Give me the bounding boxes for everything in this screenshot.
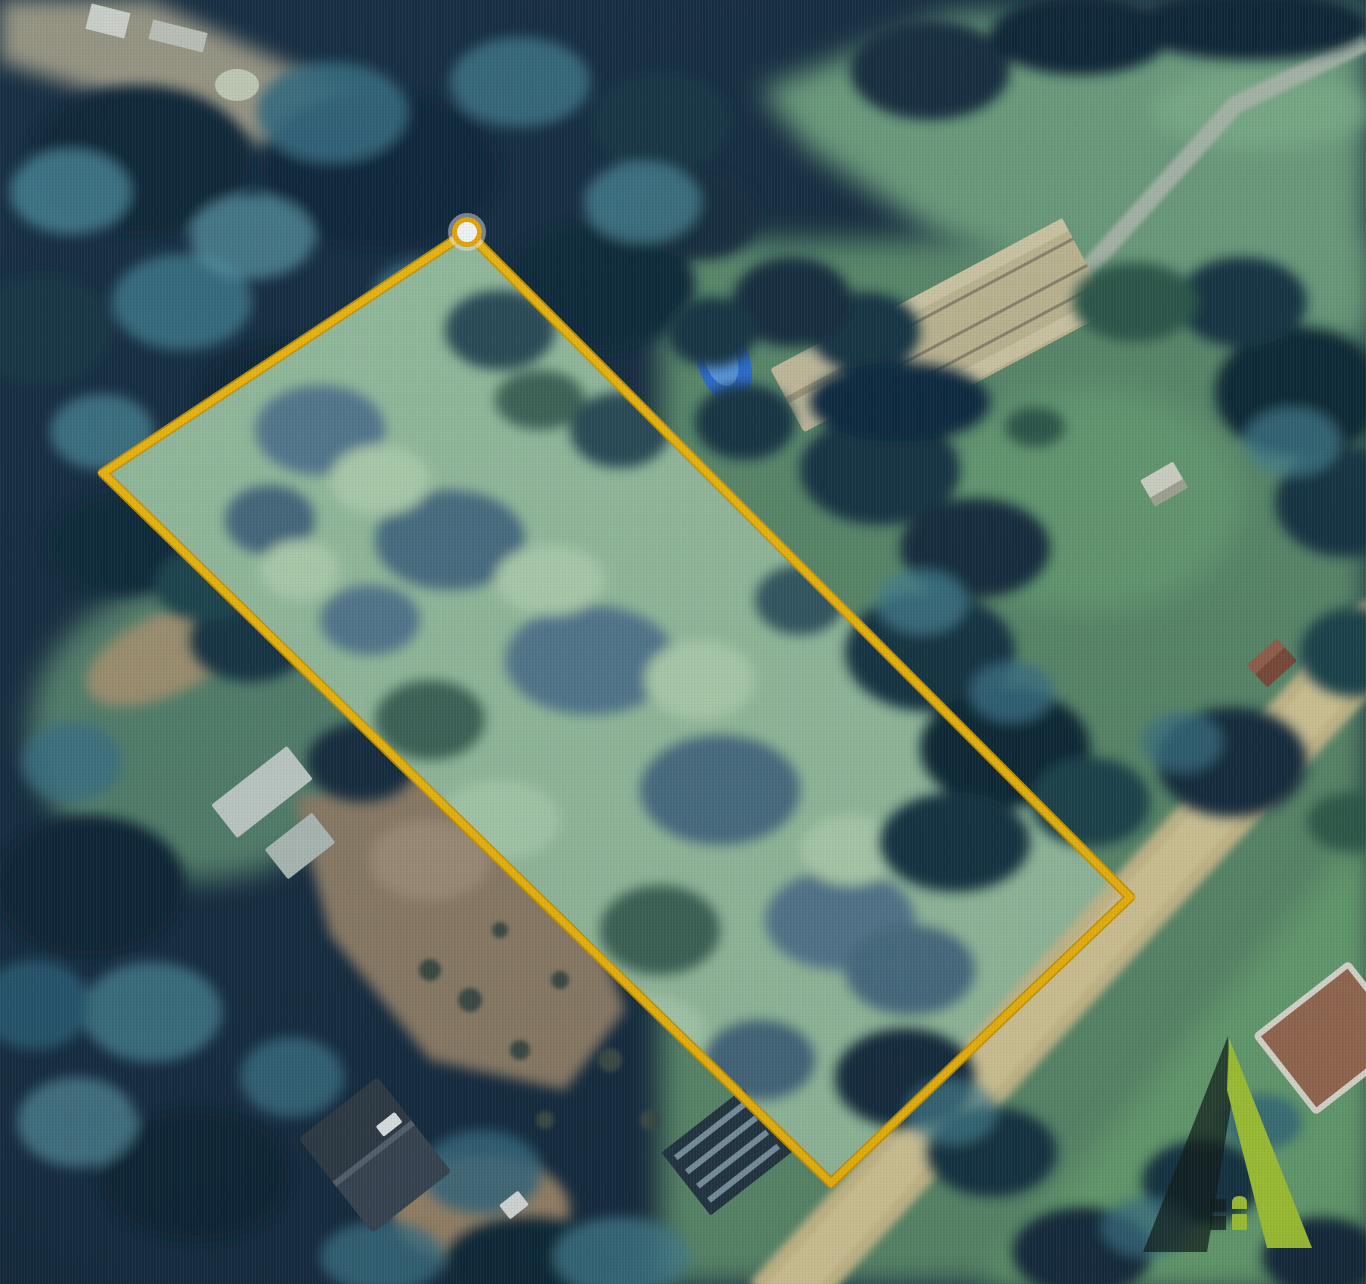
- logo-window-lower-icon: [1210, 1216, 1226, 1230]
- satellite-imagery: [0, 0, 1366, 1284]
- logo-door-lower: [1232, 1214, 1247, 1230]
- satellite-photo-stage: [0, 0, 1366, 1284]
- logo-door-icon: [1232, 1196, 1247, 1209]
- logo-window-upper-icon: [1210, 1199, 1226, 1212]
- boundary-vertex-marker: [455, 220, 480, 245]
